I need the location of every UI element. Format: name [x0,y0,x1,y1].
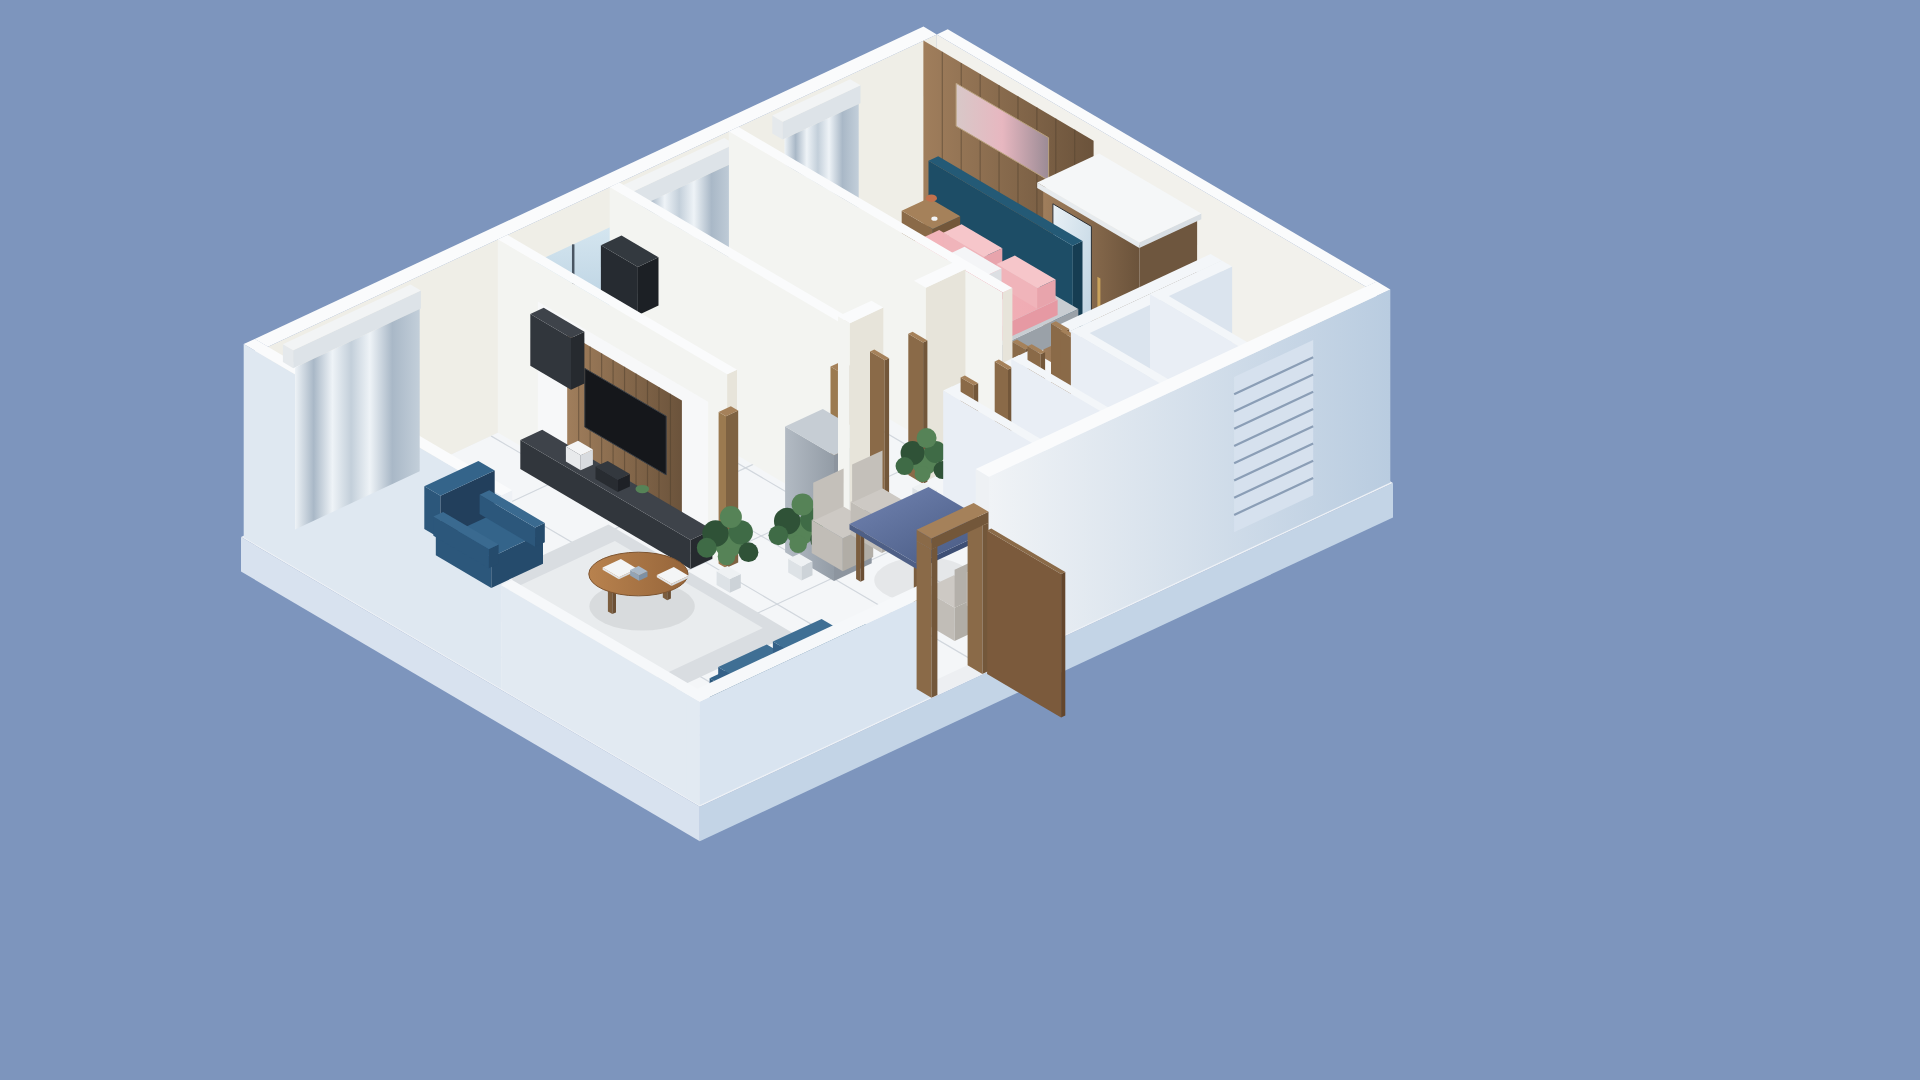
floor-plan-render [0,0,1920,1080]
entrance-door-jamb-right [968,514,989,674]
table-lamp [926,194,937,202]
entrance-door-jamb-left [917,538,938,698]
apartment-3d-floor-plan [0,0,1920,1080]
tv-unit-plant [635,485,649,493]
lamp-decor [931,217,937,221]
